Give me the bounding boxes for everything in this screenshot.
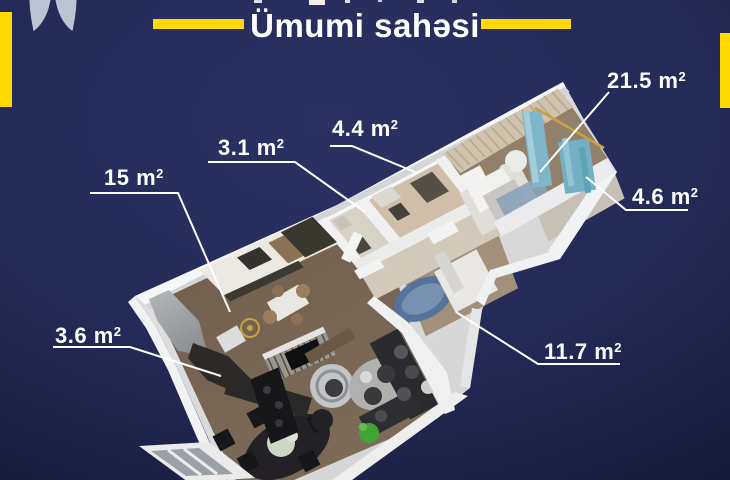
svg-text:15 m2: 15 m2	[104, 165, 164, 190]
svg-text:11.7 m2: 11.7 m2	[544, 339, 622, 364]
svg-text:Ümumi sahəsi: Ümumi sahəsi	[250, 7, 480, 44]
svg-text:21.5 m2: 21.5 m2	[607, 68, 686, 93]
svg-text:4.4 m2: 4.4 m2	[332, 116, 399, 141]
svg-text:4.6 m2: 4.6 m2	[632, 184, 699, 209]
svg-text:3.1 m2: 3.1 m2	[218, 135, 285, 160]
svg-text:3.6 m2: 3.6 m2	[55, 323, 122, 348]
